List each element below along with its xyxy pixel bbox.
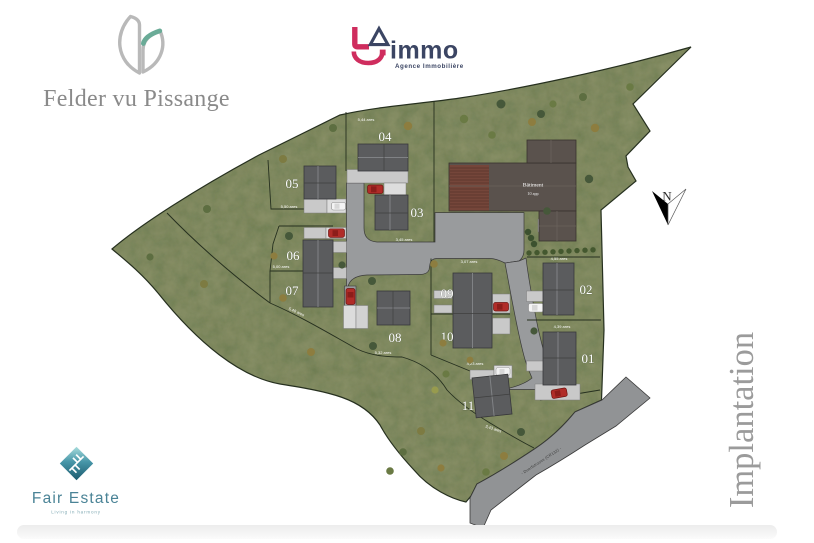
- svg-text:10 app: 10 app: [527, 191, 538, 196]
- svg-text:5,50 ares: 5,50 ares: [281, 204, 298, 209]
- svg-text:Implantation: Implantation: [723, 332, 761, 508]
- svg-text:05: 05: [286, 176, 299, 191]
- svg-text:07: 07: [286, 283, 300, 298]
- svg-text:4,39 ares: 4,39 ares: [554, 324, 571, 329]
- svg-text:02: 02: [580, 282, 593, 297]
- svg-text:01: 01: [582, 351, 595, 366]
- svg-text:Agence Immobilière: Agence Immobilière: [395, 63, 464, 70]
- svg-text:Felder vu Pissange: Felder vu Pissange: [43, 86, 230, 112]
- svg-text:N: N: [662, 188, 672, 203]
- svg-text:3,07 ares: 3,07 ares: [461, 259, 478, 264]
- svg-text:09: 09: [441, 286, 454, 301]
- svg-text:04: 04: [379, 129, 393, 144]
- svg-text:immo: immo: [390, 37, 459, 65]
- svg-text:5,00 ares: 5,00 ares: [273, 264, 290, 269]
- svg-text:5,32 ares: 5,32 ares: [375, 350, 392, 355]
- svg-text:4,55 ares: 4,55 ares: [551, 256, 568, 261]
- svg-text:03: 03: [411, 205, 424, 220]
- svg-text:08: 08: [389, 330, 402, 345]
- svg-text:06: 06: [287, 248, 301, 263]
- svg-text:Living in harmony: Living in harmony: [51, 510, 101, 515]
- svg-text:5,44 ares: 5,44 ares: [358, 117, 375, 122]
- svg-text:Fair Estate: Fair Estate: [32, 490, 120, 507]
- svg-text:Bâtiment: Bâtiment: [523, 183, 544, 189]
- svg-text:3,45 ares: 3,45 ares: [396, 237, 413, 242]
- svg-text:11: 11: [462, 398, 475, 413]
